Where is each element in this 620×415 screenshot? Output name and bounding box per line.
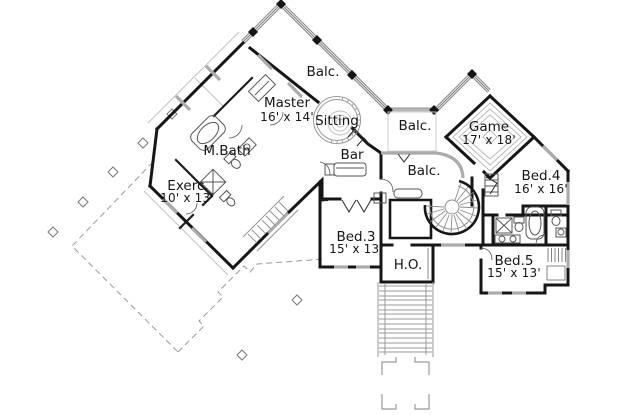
- hall-bath-toilet: [514, 217, 524, 232]
- room-dims-exercise: 10' x 13': [160, 191, 214, 205]
- room-label-mbath: M.Bath: [203, 143, 250, 159]
- hall-bath-shower: [496, 218, 512, 233]
- hall-bath-sinks: [495, 235, 520, 243]
- room-dims-game: 17' x 18': [462, 133, 516, 147]
- main-staircase: [378, 282, 433, 357]
- exercise-toilet: [220, 191, 238, 209]
- second-bath-sink: [556, 228, 566, 237]
- floor-plan-page: Balc. Master 16' x 14' Sitting Balc. Gam…: [0, 0, 620, 415]
- room-label-bar: Bar: [340, 147, 364, 163]
- room-label-balc-top: Balc.: [307, 64, 340, 80]
- second-bath-toilet: [551, 210, 561, 226]
- bar-counter: [325, 163, 366, 176]
- room-dims-bed5: 15' x 13': [487, 266, 541, 280]
- room-label-master: Master: [264, 95, 311, 111]
- stair-column-brackets: [382, 357, 429, 409]
- bed5-closet: [547, 248, 566, 280]
- room-dims-bed3: 15' x 13': [329, 242, 383, 256]
- column-marker-diamonds: [48, 109, 302, 360]
- back-staircase: [243, 196, 298, 251]
- room-label-home-office: H.O.: [394, 257, 423, 273]
- spiral-staircase: [425, 181, 479, 234]
- floor-plan-drawing: Balc. Master 16' x 14' Sitting Balc. Gam…: [0, 0, 620, 415]
- room-label-balc-upper-right: Balc.: [399, 118, 432, 134]
- room-label-sitting: Sitting: [315, 113, 359, 129]
- room-labels: Balc. Master 16' x 14' Sitting Balc. Gam…: [160, 64, 568, 280]
- room-dims-bed4: 16' x 16': [514, 182, 568, 196]
- hall-bath-tub: [526, 207, 544, 239]
- room-dims-master: 16' x 14': [260, 110, 314, 124]
- room-label-balc-center: Balc.: [408, 163, 441, 179]
